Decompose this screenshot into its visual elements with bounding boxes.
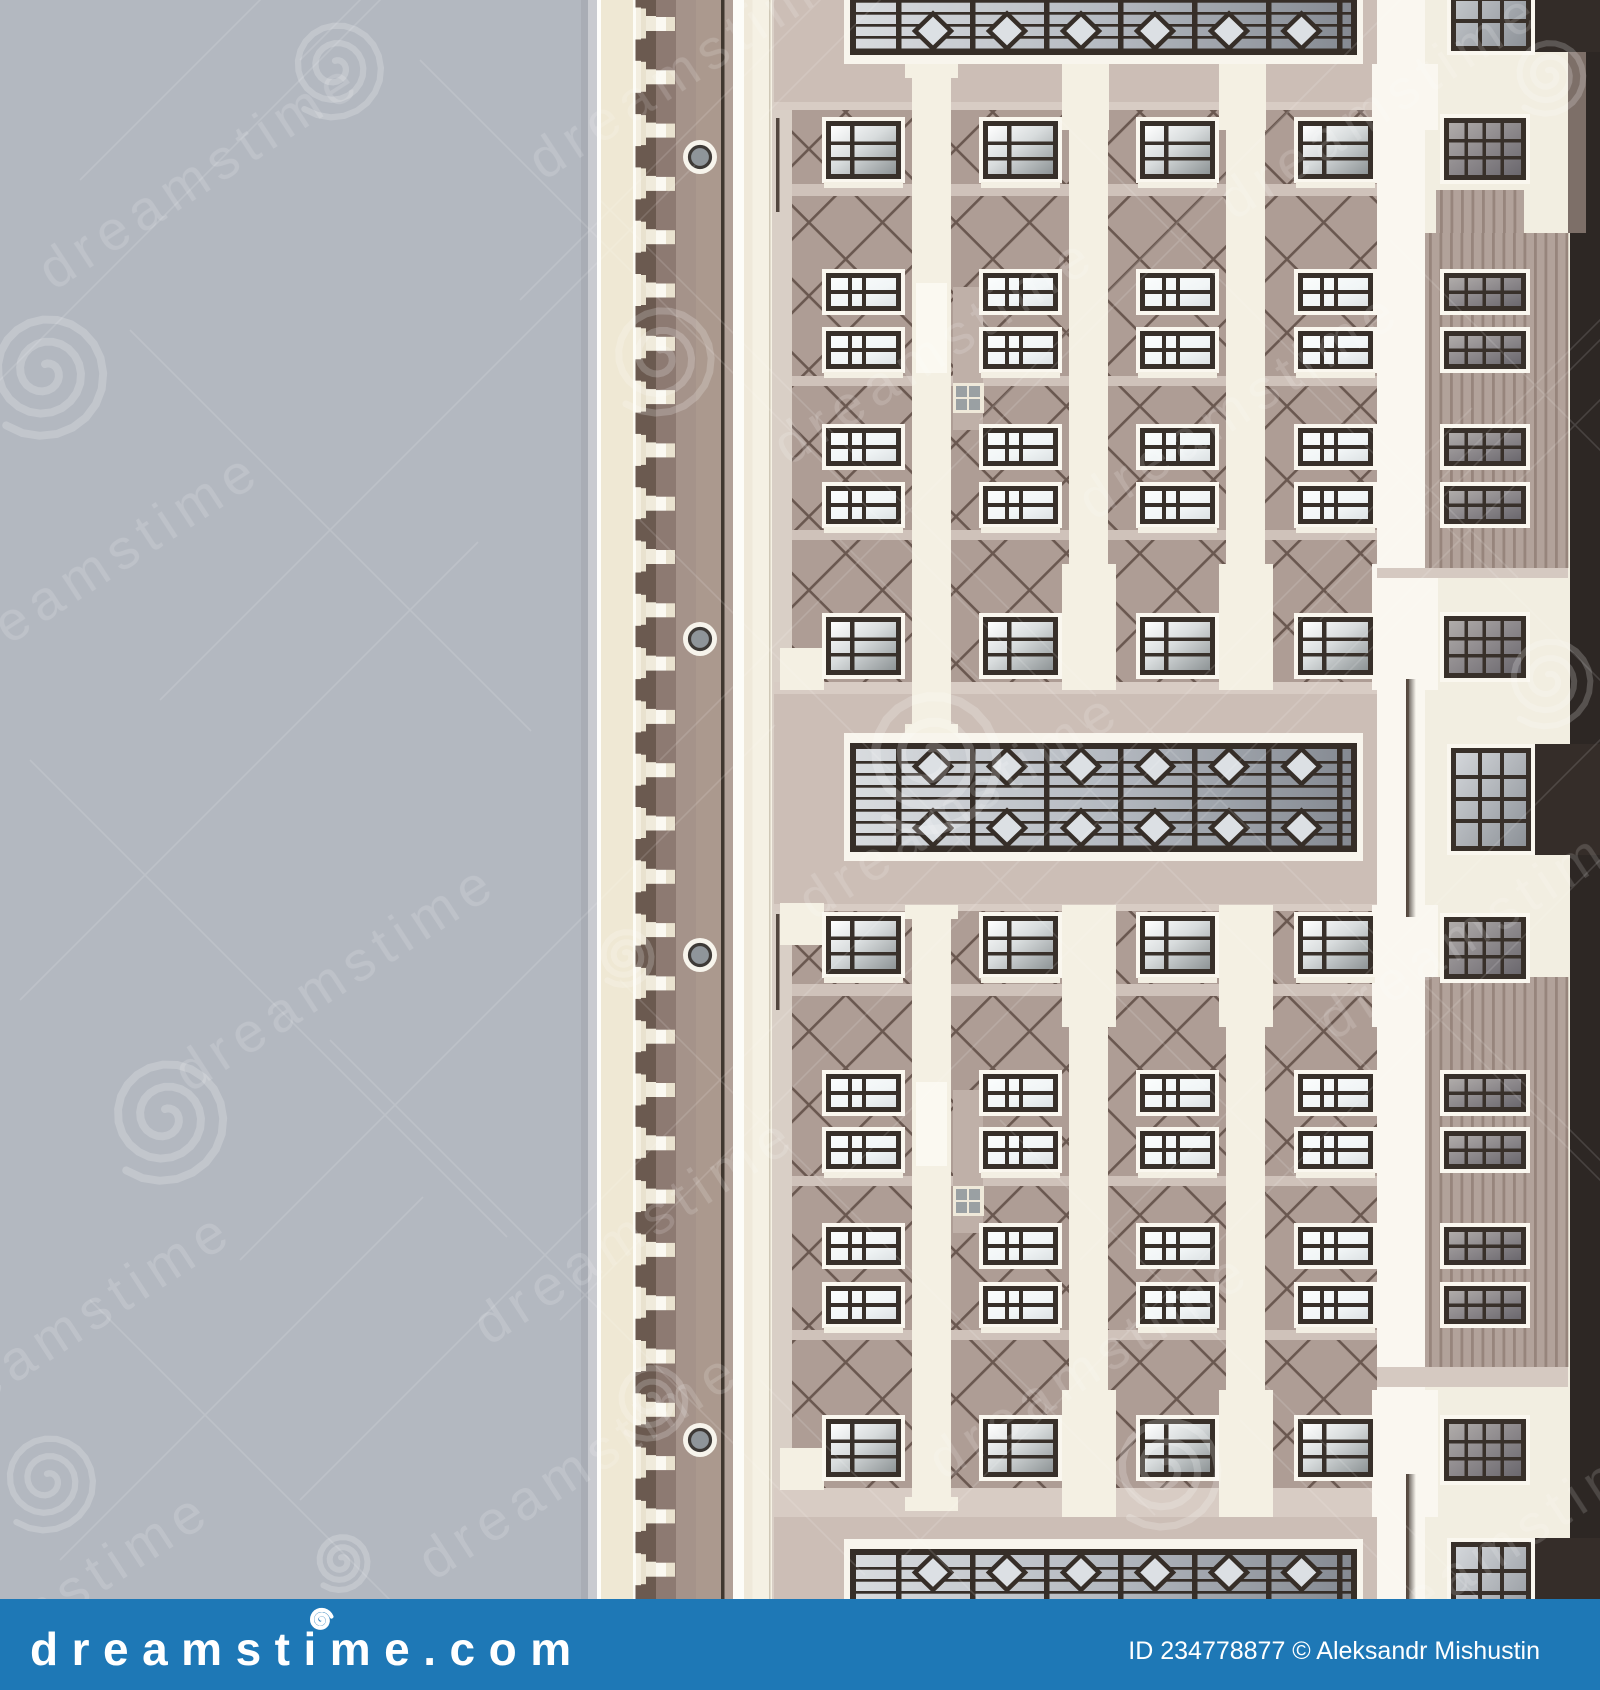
- svg-text:ID 234778877 © Aleksandr Mishu: ID 234778877 © Aleksandr Mishustin: [1128, 1637, 1540, 1665]
- svg-text:dreamstime.com: dreamstime.com: [30, 1623, 585, 1675]
